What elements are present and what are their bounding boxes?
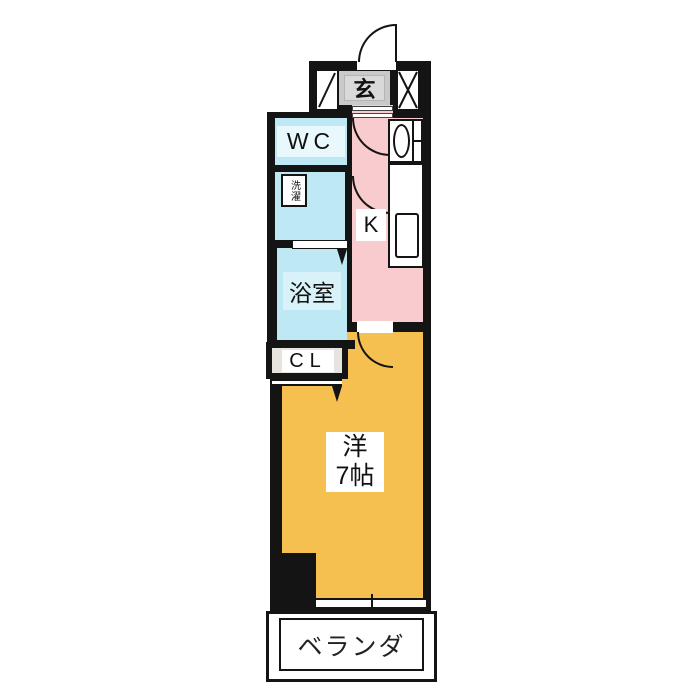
- closet-door-pivot-left-icon: [272, 386, 282, 402]
- floor-plan: 玄 WC 洗濯 浴室 K CL: [0, 0, 700, 700]
- kitchen-label-box: K: [356, 209, 386, 241]
- washbasin-bowl-icon: [393, 124, 410, 158]
- pipe-shaft: [398, 71, 418, 109]
- shoe-cabinet-hatch-icon: [317, 71, 337, 109]
- entrance-door-opening: [357, 61, 396, 70]
- washing-machine: 洗濯: [281, 174, 307, 207]
- kitchen-stove-icon: [395, 213, 419, 258]
- western-room-label-box: 洋 7帖: [326, 432, 384, 492]
- closet-label-box: CL: [282, 350, 334, 372]
- washbasin-shelf-line: [414, 140, 421, 142]
- shoe-cabinet: [317, 71, 337, 109]
- kitchen-label: K: [364, 212, 379, 238]
- genkan-area: 玄: [339, 71, 390, 105]
- pipe-shaft-x-icon: [398, 71, 418, 109]
- bathroom-door: [292, 240, 348, 249]
- closet-door-pivot-right-icon: [332, 386, 342, 402]
- genkan-label-box: 玄: [344, 75, 385, 101]
- western-room-label-line1: 洋: [342, 433, 367, 462]
- bathroom-door-fold-icon: [337, 249, 347, 265]
- closet-label: CL: [289, 350, 327, 373]
- kitchen-counter: [388, 163, 424, 268]
- western-room-label-line2: 7帖: [336, 462, 375, 491]
- genkan-label: 玄: [353, 72, 375, 104]
- bathroom-label: 浴室: [289, 274, 335, 308]
- veranda-inner: ベランダ: [279, 618, 424, 671]
- washing-machine-label: 洗濯: [287, 180, 302, 202]
- wc-label-band: WC: [277, 126, 345, 157]
- closet-door-track: [272, 379, 342, 386]
- veranda: ベランダ: [266, 611, 437, 682]
- entrance-door-leaf: [395, 24, 397, 62]
- closet-box: CL: [266, 342, 348, 379]
- veranda-label: ベランダ: [297, 627, 405, 663]
- entrance-door-arc-icon: [358, 24, 396, 62]
- washbasin-unit: [388, 119, 423, 163]
- genkan-step-upper: [352, 106, 393, 111]
- bathroom-label-band: 浴室: [283, 272, 341, 310]
- wc-label: WC: [287, 128, 335, 155]
- pillar: [270, 553, 316, 611]
